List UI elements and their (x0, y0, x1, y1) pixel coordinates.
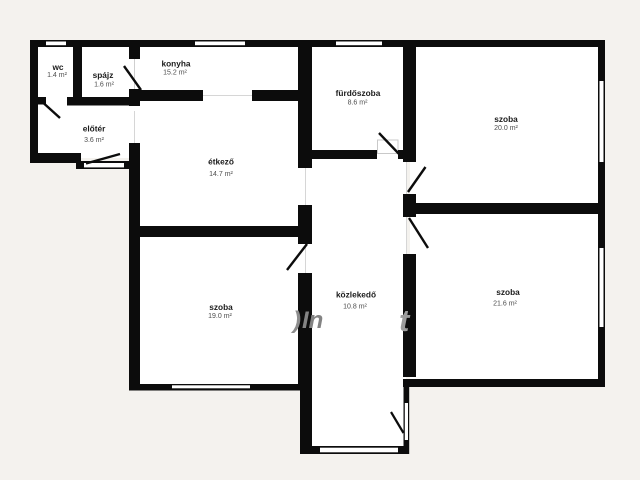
svg-text:közlekedő: közlekedő (336, 290, 376, 300)
svg-text:szoba: szoba (496, 287, 520, 297)
svg-text:1.4 m²: 1.4 m² (47, 72, 68, 79)
svg-text:21.6 m²: 21.6 m² (493, 301, 517, 308)
svg-text:In: In (302, 307, 323, 334)
svg-text:szoba: szoba (209, 302, 233, 312)
svg-text:étkező: étkező (208, 157, 234, 167)
svg-text:8.6 m²: 8.6 m² (348, 100, 369, 107)
svg-text:14.7 m²: 14.7 m² (209, 171, 233, 178)
svg-text:szoba: szoba (494, 114, 518, 124)
svg-text:előtér: előtér (83, 124, 106, 134)
svg-text:20.0 m²: 20.0 m² (494, 125, 518, 132)
svg-text:t: t (399, 303, 411, 338)
svg-text:1.6 m²: 1.6 m² (94, 82, 115, 89)
svg-text:fürdőszoba: fürdőszoba (336, 88, 381, 98)
svg-text:spájz: spájz (93, 70, 114, 80)
svg-text:10.8 m²: 10.8 m² (343, 304, 367, 311)
svg-text:3.6 m²: 3.6 m² (84, 137, 105, 144)
svg-text:15.2 m²: 15.2 m² (163, 70, 187, 77)
svg-text:19.0 m²: 19.0 m² (208, 313, 232, 320)
svg-text:wc: wc (51, 62, 63, 72)
svg-text:konyha: konyha (161, 59, 190, 69)
